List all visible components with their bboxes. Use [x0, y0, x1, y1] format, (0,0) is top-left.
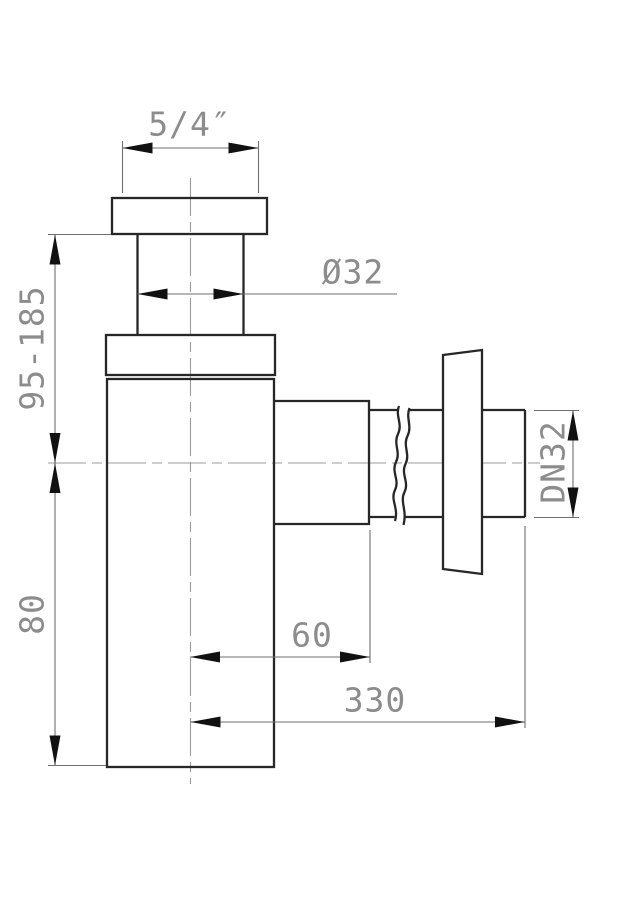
break-line-right	[403, 408, 410, 525]
arrowhead-left	[190, 652, 220, 663]
dim-label-adjustable-height: 95-185	[13, 285, 52, 410]
arrowhead-top	[50, 463, 61, 493]
dim-label-body-height: 80	[13, 593, 52, 635]
bottle-trap-drawing-canvas: 5/4″ Ø32 95-185 80	[0, 0, 636, 900]
dim-label-outlet-offset: 60	[291, 616, 333, 655]
dimension-outlet-nominal-diameter: DN32	[534, 411, 580, 518]
dim-label-outlet-nominal-diameter: DN32	[534, 420, 573, 503]
arrowhead-right	[214, 289, 244, 300]
part-outline	[106, 198, 525, 767]
wall-rosette	[443, 350, 482, 574]
arrowhead-top	[50, 235, 61, 265]
dim-label-inlet-thread: 5/4″	[148, 105, 231, 144]
arrowhead-bottom	[50, 736, 61, 766]
dimension-adjustable-height: 95-185	[13, 235, 112, 464]
dimension-inlet-diameter: Ø32	[138, 253, 398, 300]
dimension-body-height: 80	[13, 463, 107, 766]
arrowhead-right	[495, 717, 525, 728]
technical-drawing-page: 5/4″ Ø32 95-185 80	[0, 0, 636, 900]
inlet-nut	[112, 198, 267, 234]
arrowhead-left	[191, 717, 221, 728]
arrowhead-left	[138, 289, 168, 300]
dim-label-inlet-diameter: Ø32	[322, 253, 385, 292]
dimension-outlet-offset: 60	[190, 530, 370, 663]
arrowhead-right	[340, 652, 370, 663]
arrowhead-left	[123, 143, 153, 154]
dim-label-outlet-length: 330	[344, 681, 407, 720]
arrowhead-right	[229, 143, 259, 154]
arrowhead-bottom	[50, 433, 61, 463]
